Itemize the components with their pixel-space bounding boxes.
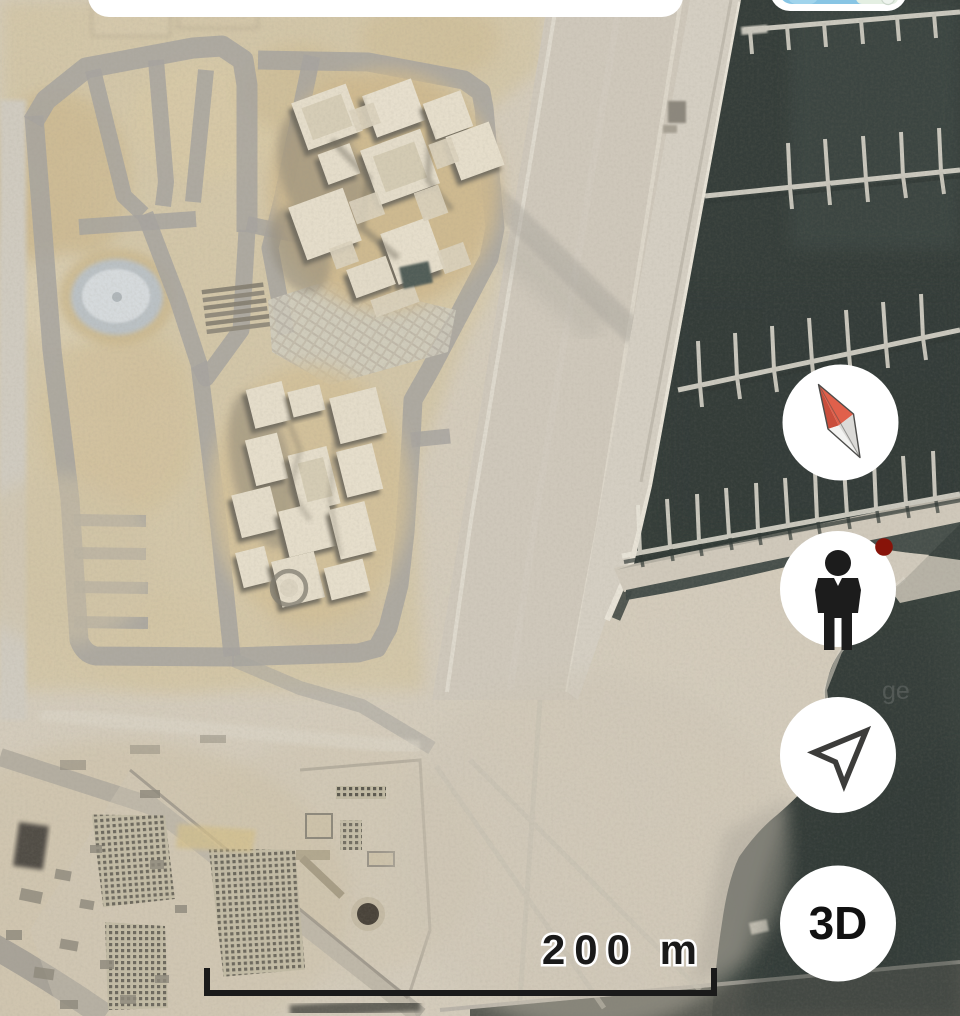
svg-text:3D: 3D [809,897,868,949]
svg-text:200 m: 200 m [542,926,706,973]
